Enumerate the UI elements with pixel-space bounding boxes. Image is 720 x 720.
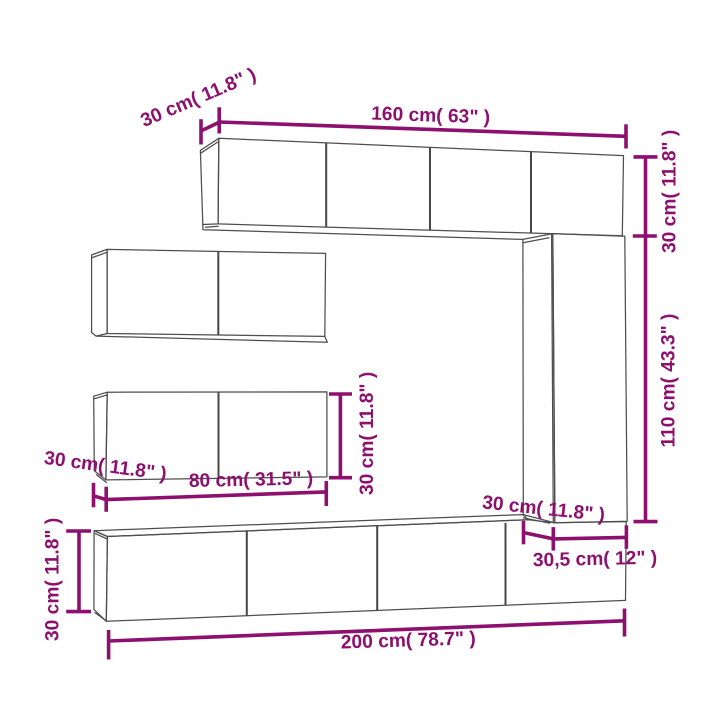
svg-text:200 cm( 78.7" ): 200 cm( 78.7" ) [340, 628, 476, 653]
svg-text:160 cm( 63" ): 160 cm( 63" ) [371, 104, 491, 129]
svg-text:30 cm( 11.8" ): 30 cm( 11.8" ) [357, 372, 378, 495]
svg-text:80 cm( 31.5" ): 80 cm( 31.5" ) [189, 468, 314, 492]
svg-text:30,5 cm( 12" ): 30,5 cm( 12" ) [533, 548, 658, 572]
svg-text:30 cm( 11.8" ): 30 cm( 11.8" ) [43, 518, 64, 641]
svg-text:30 cm( 11.8" ): 30 cm( 11.8" ) [660, 130, 681, 253]
svg-text:110 cm( 43.3" ): 110 cm( 43.3" ) [659, 314, 680, 448]
